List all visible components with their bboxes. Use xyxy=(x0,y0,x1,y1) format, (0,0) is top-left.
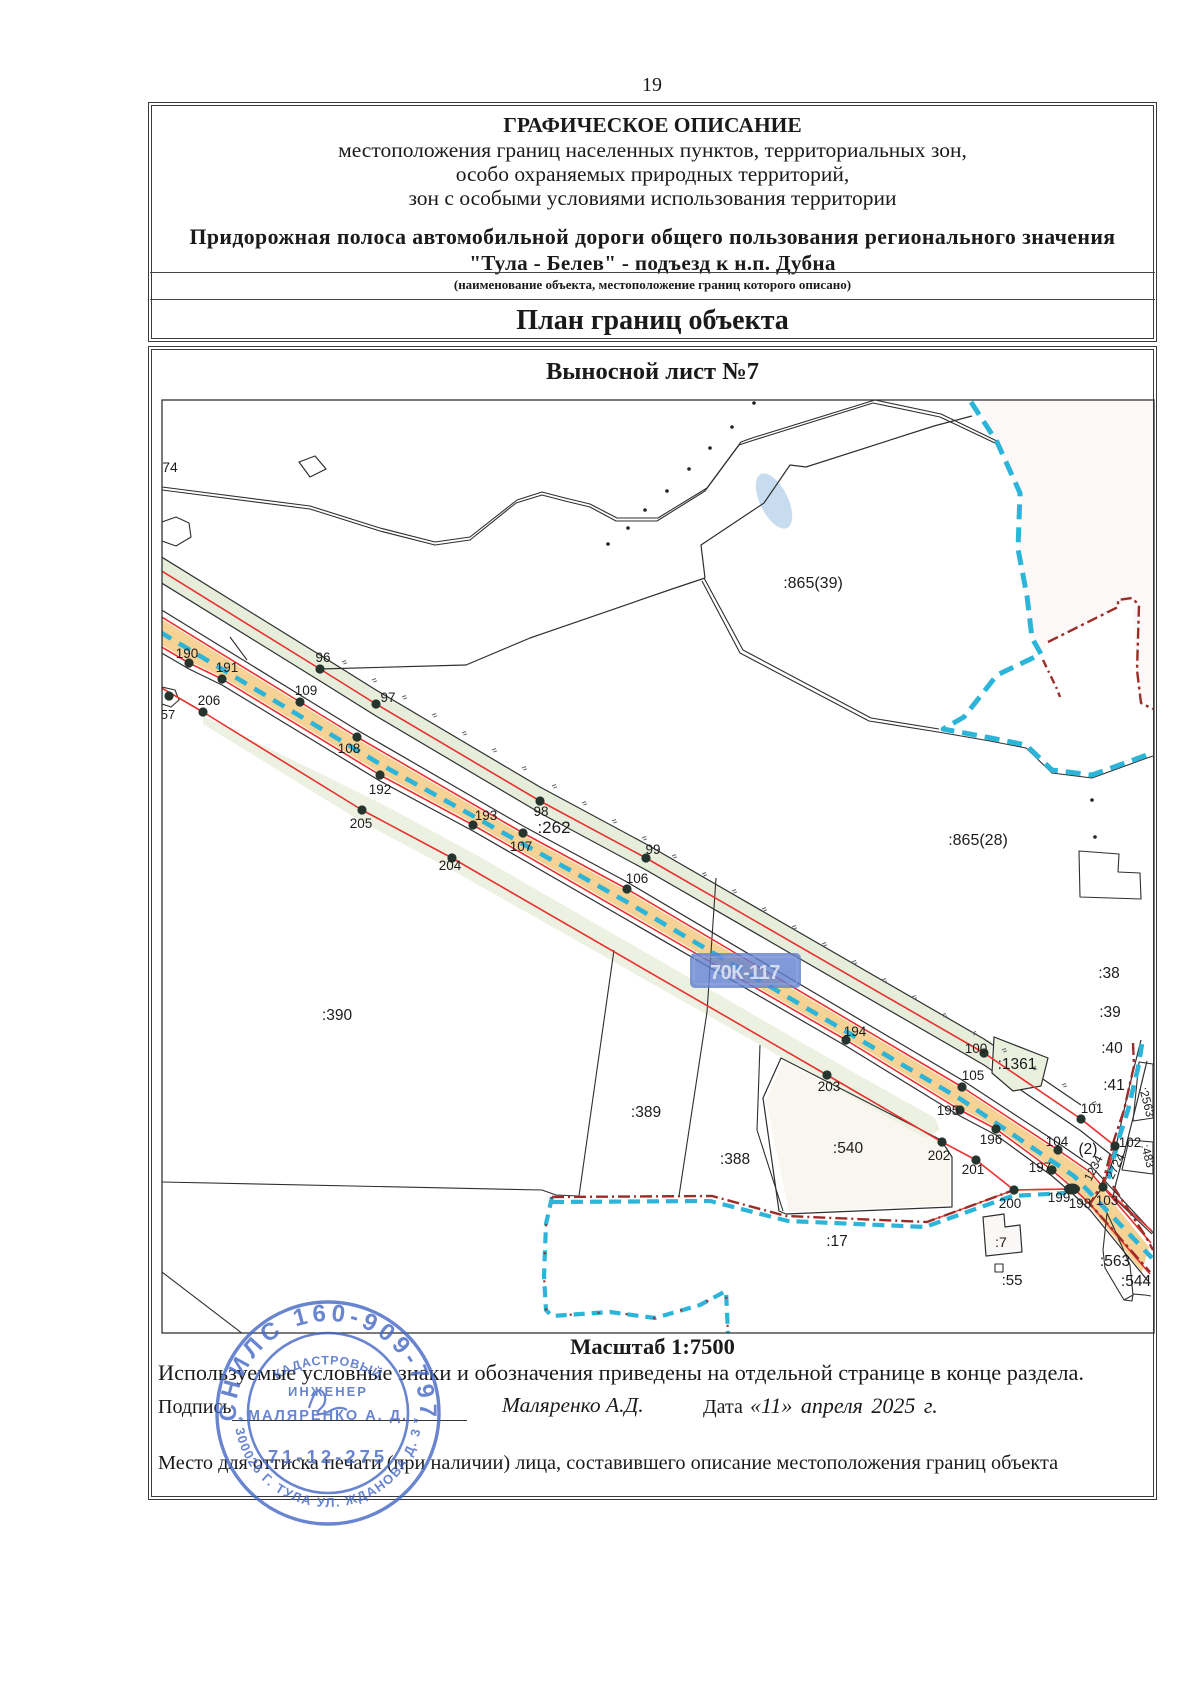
svg-text:198: 198 xyxy=(1069,1196,1092,1211)
svg-text:205: 205 xyxy=(350,816,373,831)
svg-text:105: 105 xyxy=(962,1068,985,1083)
svg-text:96: 96 xyxy=(315,650,330,665)
svg-text:2724: 2724 xyxy=(1103,1151,1128,1181)
svg-text:190: 190 xyxy=(176,646,199,661)
svg-text:98: 98 xyxy=(533,804,548,819)
svg-text:107: 107 xyxy=(510,839,533,854)
svg-text:191: 191 xyxy=(216,660,239,675)
svg-text:70К-117: 70К-117 xyxy=(710,962,780,984)
svg-text::17: :17 xyxy=(826,1233,848,1250)
svg-text:108: 108 xyxy=(338,741,361,756)
svg-text::483: :483 xyxy=(1138,1143,1155,1169)
svg-text::1361: :1361 xyxy=(998,1056,1037,1073)
svg-text:193: 193 xyxy=(475,808,498,823)
svg-text::544: :544 xyxy=(1121,1273,1152,1290)
svg-text:200: 200 xyxy=(999,1196,1022,1211)
svg-text:206: 206 xyxy=(198,693,221,708)
svg-text:ИНЖЕНЕР: ИНЖЕНЕР xyxy=(288,1384,368,1399)
svg-text::2563: :2563 xyxy=(1136,1086,1155,1119)
svg-text:97: 97 xyxy=(380,690,395,705)
svg-text:КАДАСТРОВЫЙ: КАДАСТРОВЫЙ xyxy=(271,1353,385,1382)
svg-text:199: 199 xyxy=(1048,1190,1071,1205)
svg-text:192: 192 xyxy=(369,782,392,797)
svg-text::563: :563 xyxy=(1100,1253,1130,1270)
svg-text:202: 202 xyxy=(928,1148,951,1163)
svg-text::388: :388 xyxy=(720,1151,750,1168)
svg-text:102: 102 xyxy=(1119,1135,1142,1150)
svg-text:101: 101 xyxy=(1081,1101,1104,1116)
svg-text::7: :7 xyxy=(995,1234,1007,1250)
svg-text:204: 204 xyxy=(439,858,462,873)
svg-text::262: :262 xyxy=(537,818,570,837)
svg-text::389: :389 xyxy=(631,1104,661,1121)
svg-text::40: :40 xyxy=(1101,1040,1123,1057)
svg-text:194: 194 xyxy=(844,1024,867,1039)
svg-text::38: :38 xyxy=(1098,965,1120,982)
svg-text::55: :55 xyxy=(1002,1272,1023,1289)
svg-text:203: 203 xyxy=(818,1079,841,1094)
svg-text::865(28): :865(28) xyxy=(948,832,1008,849)
svg-text::39: :39 xyxy=(1099,1004,1121,1021)
svg-text:71-12-275: 71-12-275 xyxy=(268,1446,388,1467)
svg-text:МАЛЯРЕНКО А. Д.: МАЛЯРЕНКО А. Д. xyxy=(248,1408,408,1424)
svg-text:196: 196 xyxy=(980,1132,1003,1147)
svg-text:195: 195 xyxy=(937,1103,960,1118)
svg-text:201: 201 xyxy=(962,1162,985,1177)
svg-text:74: 74 xyxy=(162,459,178,475)
svg-text:57: 57 xyxy=(161,707,175,722)
svg-text::41: :41 xyxy=(1103,1077,1125,1094)
svg-text:109: 109 xyxy=(295,683,318,698)
svg-text::540: :540 xyxy=(833,1140,864,1157)
svg-text:197: 197 xyxy=(1029,1160,1052,1175)
svg-text:99: 99 xyxy=(645,842,660,857)
svg-text:100: 100 xyxy=(965,1041,988,1056)
svg-text:106: 106 xyxy=(626,871,649,886)
svg-text::865(39): :865(39) xyxy=(783,575,843,592)
svg-text:103: 103 xyxy=(1096,1193,1119,1208)
svg-text::390: :390 xyxy=(322,1007,353,1024)
svg-text:104: 104 xyxy=(1046,1134,1069,1149)
